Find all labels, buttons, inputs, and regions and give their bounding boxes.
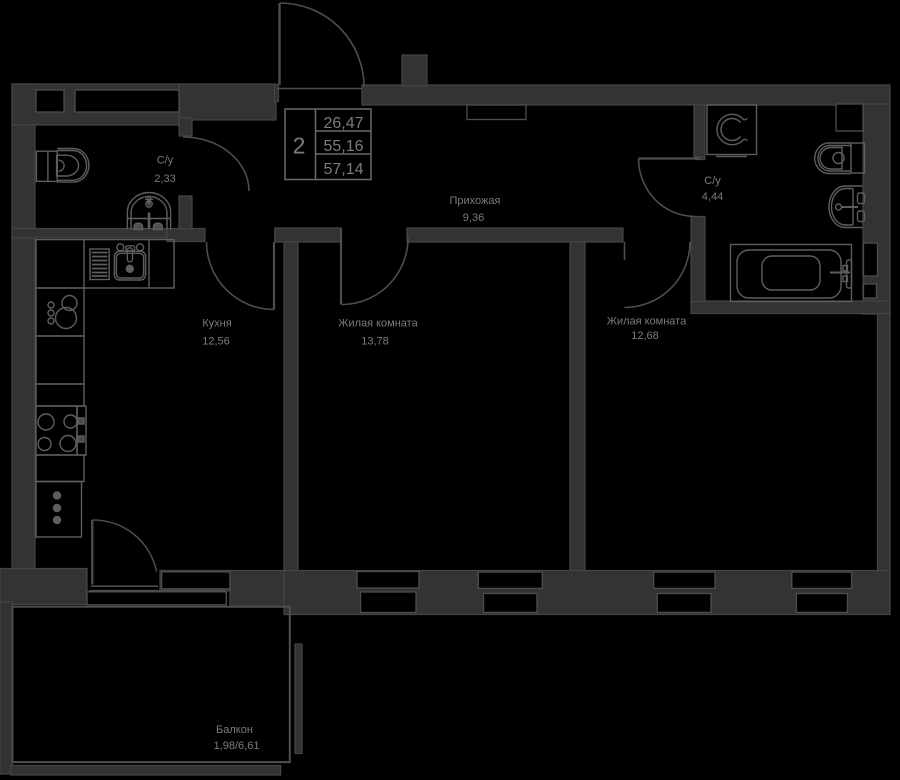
svg-text:2: 2 (293, 133, 306, 159)
svg-text:1,98/6,61: 1,98/6,61 (214, 740, 260, 752)
svg-text:57,14: 57,14 (323, 161, 363, 178)
svg-text:12,68: 12,68 (631, 330, 659, 342)
svg-text:С/у: С/у (157, 155, 174, 167)
svg-text:2,33: 2,33 (154, 173, 175, 185)
svg-text:4,44: 4,44 (702, 191, 723, 203)
svg-text:Жилая комната: Жилая комната (338, 318, 418, 330)
svg-text:13,78: 13,78 (361, 336, 389, 348)
svg-text:Балкон: Балкон (216, 724, 253, 736)
svg-text:Кухня: Кухня (202, 318, 231, 330)
svg-text:9,36: 9,36 (463, 212, 484, 224)
svg-text:26,47: 26,47 (323, 115, 363, 132)
svg-text:55,16: 55,16 (323, 138, 363, 155)
svg-text:Прихожая: Прихожая (450, 195, 501, 207)
svg-text:Жилая комната: Жилая комната (607, 316, 687, 328)
svg-text:С/у: С/у (704, 175, 721, 187)
svg-text:12,56: 12,56 (202, 336, 230, 348)
